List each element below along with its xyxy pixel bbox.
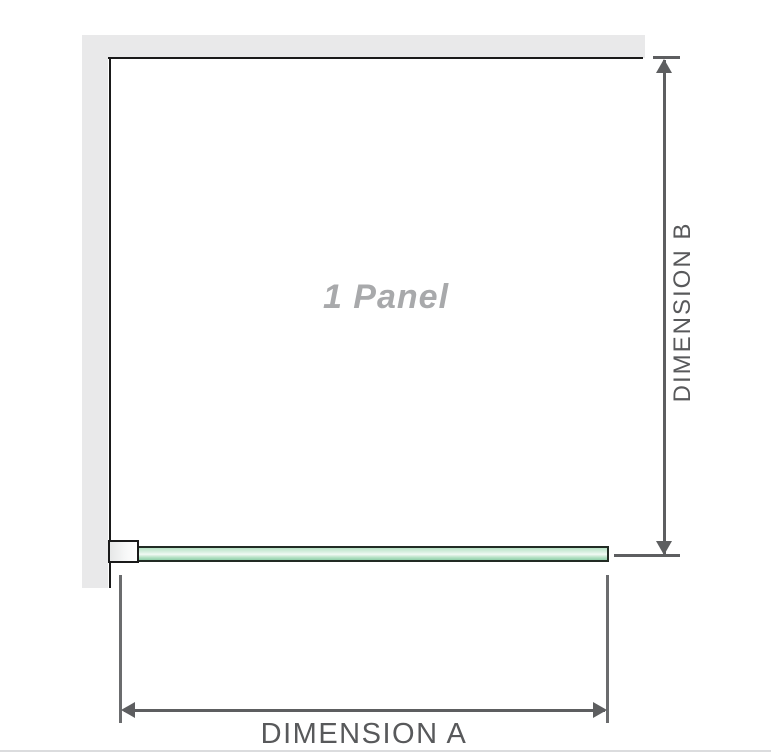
arrow-right-icon [593,702,607,718]
glass-panel-plan [121,546,609,562]
arrow-down-icon [656,541,672,555]
bottom-baseline [0,750,771,752]
dimension-b-label: DIMENSION B [670,212,696,412]
panel-label: 1 Panel [286,276,486,318]
dimension-a-line [124,709,605,712]
panel-left-edge [109,57,111,588]
wall-left-band [82,35,108,588]
dimension-a-label: DIMENSION A [214,718,514,750]
dimension-a-left-extension-line [119,575,122,723]
dimension-a-right-extension-line [606,575,609,723]
arrow-left-icon [121,702,135,718]
dimension-b-line [663,60,666,554]
wall-top-band [82,35,645,58]
panel-top-edge [108,57,643,59]
wall-bracket [108,540,139,563]
panel-dimension-diagram: 1 Panel DIMENSION B DIMENSION A [0,0,771,755]
arrow-up-icon [656,59,672,73]
